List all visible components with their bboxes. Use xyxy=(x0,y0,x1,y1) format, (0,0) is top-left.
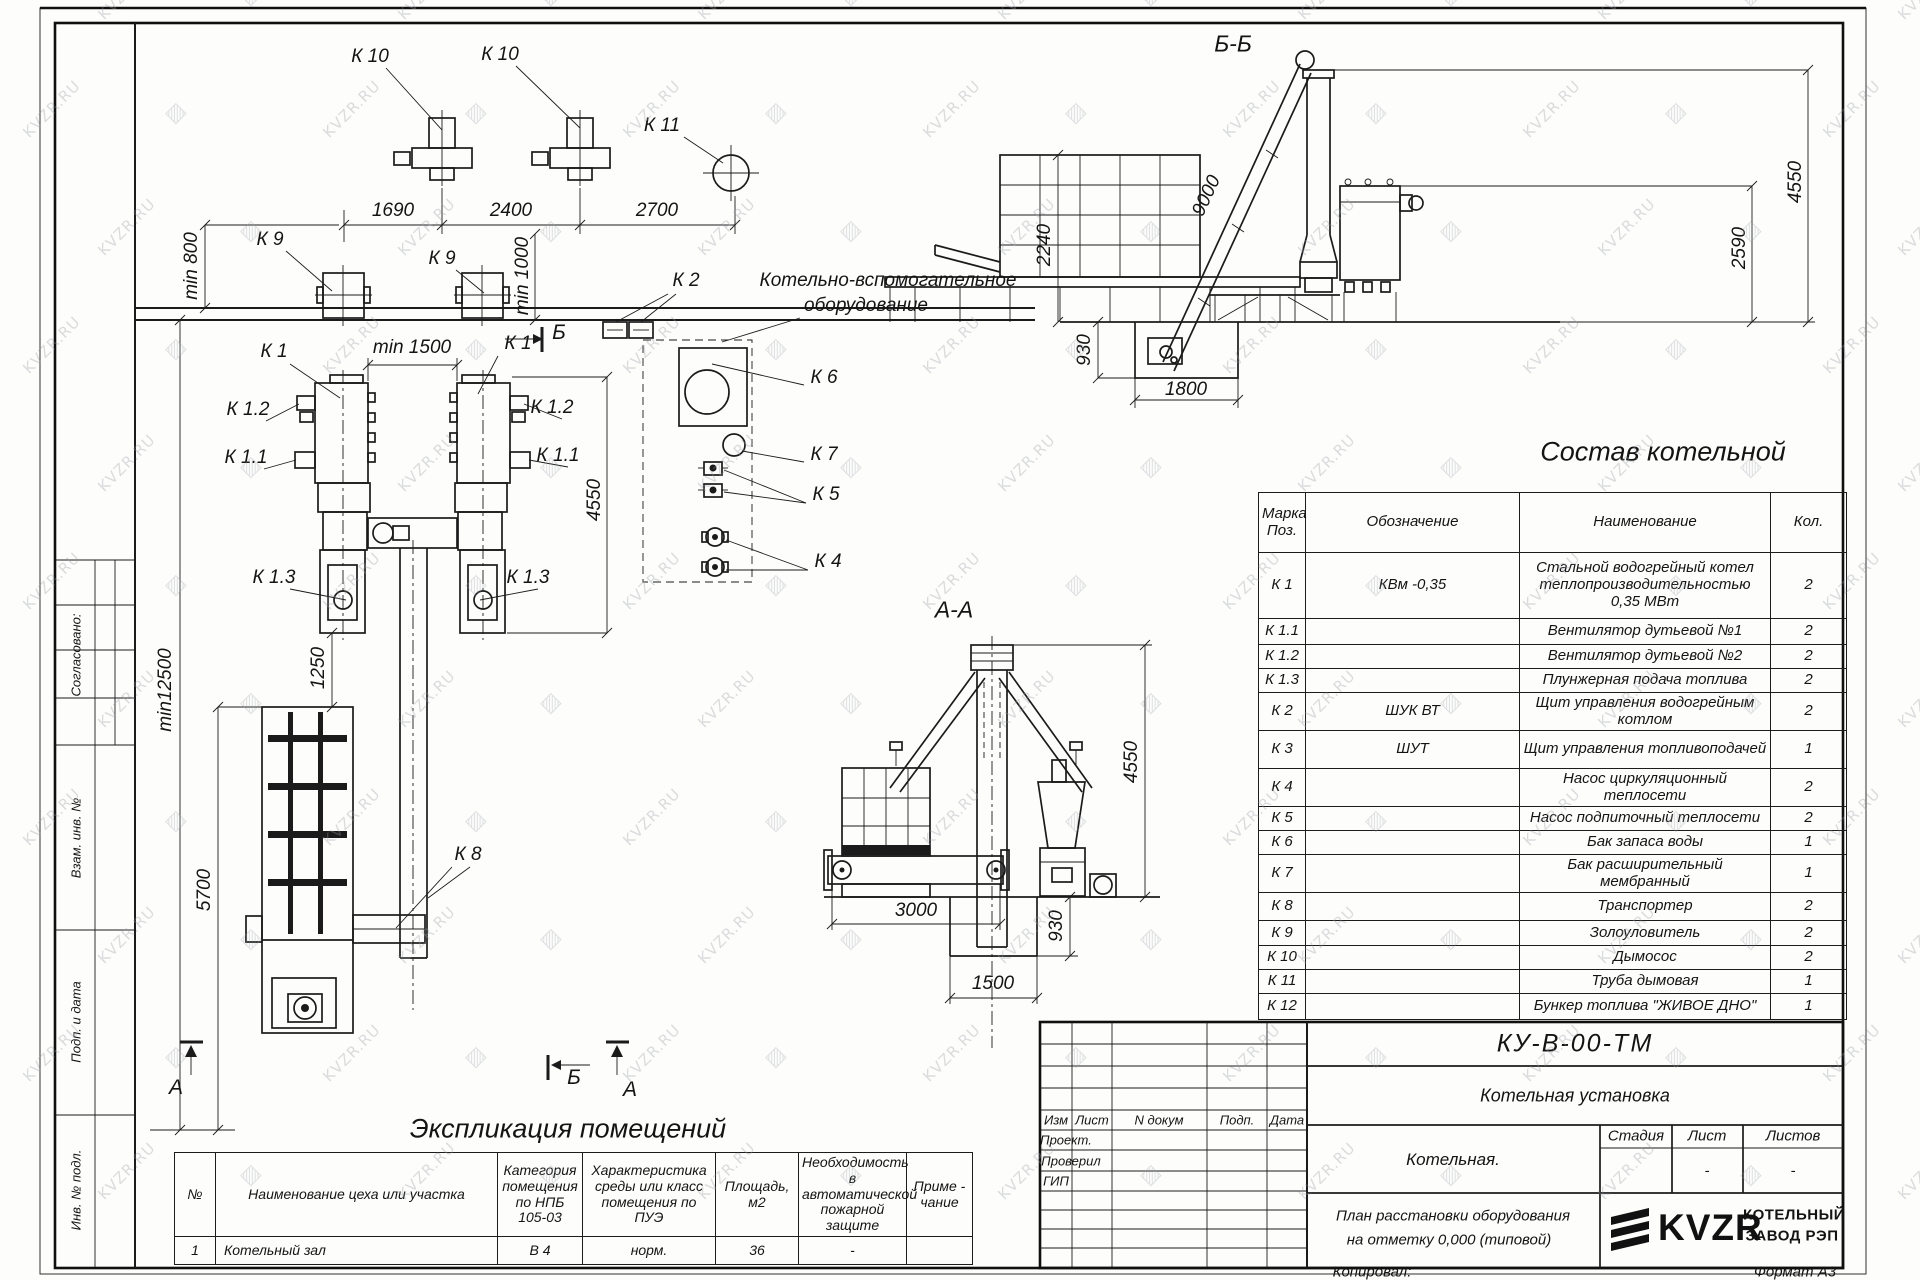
cell-num: 1 xyxy=(175,1237,216,1265)
label-k2: К 2 xyxy=(672,270,699,292)
dim-min1500: min 1500 xyxy=(373,337,451,359)
table-row: К 12Бункер топлива "ЖИВОЕ ДНО"1 xyxy=(1259,994,1847,1020)
format-label: Формат А3 xyxy=(1754,1264,1836,1280)
cell-qty: 1 xyxy=(1771,855,1847,893)
table-row: К 7Бак расширительный мембранный1 xyxy=(1259,855,1847,893)
label-k6: К 6 xyxy=(810,367,837,389)
dim-4550-aa: 4550 xyxy=(1121,741,1143,783)
cell-designation xyxy=(1306,994,1520,1020)
margin-approved: Согласовано: xyxy=(69,614,84,697)
cell-designation: ШУТ xyxy=(1306,731,1520,769)
sostav-title: Состав котельной xyxy=(1540,437,1786,468)
sheet-title-line1: План расстановки оборудования xyxy=(1336,1208,1570,1225)
role-proveril: Проверил xyxy=(1041,1154,1100,1169)
label-k1_3-right: К 1.3 xyxy=(507,567,550,589)
cell-qty: 2 xyxy=(1771,693,1847,731)
dim-2240: 2240 xyxy=(1034,224,1056,266)
cell-qty: 1 xyxy=(1771,731,1847,769)
company-logo: KVZR xyxy=(1608,1200,1840,1256)
table-row: К 8Транспортер2 xyxy=(1259,893,1847,921)
col-header-category: Категория помещения по НПБ 105-03 xyxy=(498,1153,583,1237)
aux-note-line1: Котельно-вспомогательное xyxy=(760,270,1017,292)
cell-qty: 2 xyxy=(1771,669,1847,693)
cell-name: Бак запаса воды xyxy=(1520,831,1771,855)
aux-equipment xyxy=(643,318,808,582)
aux-note-line2: оборудование xyxy=(804,295,928,317)
cell-name: Насос подпиточный теплосети xyxy=(1520,807,1771,831)
cell-qty: 1 xyxy=(1771,831,1847,855)
label-k10-2: К 10 xyxy=(481,44,519,66)
margin-inv: Инв. № подл. xyxy=(69,1150,84,1231)
sheets-header: Листов xyxy=(1766,1128,1821,1145)
col-header-name: Наименование xyxy=(1520,493,1771,553)
margin-vzam: Взам. инв. № xyxy=(69,798,84,878)
cell-designation xyxy=(1306,619,1520,645)
dim-1690: 1690 xyxy=(372,200,414,222)
label-k1_1-right: К 1.1 xyxy=(537,445,580,467)
kvzr-logo-text: KVZR xyxy=(1658,1207,1763,1249)
sostav-table: Марка Поз. Обозначение Наименование Кол.… xyxy=(1258,492,1847,1020)
dim-min12500: min12500 xyxy=(155,648,177,731)
margin-grid xyxy=(55,560,135,1268)
cell-qty: 2 xyxy=(1771,893,1847,921)
cell-mark: К 2 xyxy=(1259,693,1306,731)
cell-mark: К 5 xyxy=(1259,807,1306,831)
col-header-env: Характеристика среды или класс помещения… xyxy=(583,1153,716,1237)
col-header-designation: Обозначение xyxy=(1306,493,1520,553)
cell-mark: К 6 xyxy=(1259,831,1306,855)
table-row: К 1КВм -0,35Стальной водогрейный котел т… xyxy=(1259,553,1847,619)
explication-table: № Наименование цеха или участка Категори… xyxy=(174,1152,973,1265)
cell-name: Бункер топлива "ЖИВОЕ ДНО" xyxy=(1520,994,1771,1020)
dim-5700: 5700 xyxy=(194,869,216,911)
cell-mark: К 3 xyxy=(1259,731,1306,769)
dim-930-bb: 930 xyxy=(1074,334,1096,366)
cell-designation xyxy=(1306,921,1520,946)
cell-name: Щит управления водогрейным котлом xyxy=(1520,693,1771,731)
dim-min800: min 800 xyxy=(181,232,203,300)
cell-designation xyxy=(1306,855,1520,893)
section-marker-a-right: А xyxy=(623,1078,637,1102)
label-k1_2-left: К 1.2 xyxy=(227,399,270,421)
dim-2400: 2400 xyxy=(490,200,532,222)
table-header-row: Марка Поз. Обозначение Наименование Кол. xyxy=(1259,493,1847,553)
col-header-name: Наименование цеха или участка xyxy=(216,1153,498,1237)
col-header-num: № xyxy=(175,1153,216,1237)
table-row: К 2ШУК ВТЩит управления водогрейным котл… xyxy=(1259,693,1847,731)
kvzr-logo-icon xyxy=(1608,1204,1654,1252)
cell-area: 36 xyxy=(716,1237,799,1265)
col-header-fire: Необходимость в автоматической пожарной … xyxy=(799,1153,907,1237)
cell-category: В 4 xyxy=(498,1237,583,1265)
cell-qty: 2 xyxy=(1771,769,1847,807)
cell-qty: 1 xyxy=(1771,970,1847,994)
explication-title: Экспликация помещений xyxy=(410,1114,726,1145)
table-header-row: № Наименование цеха или участка Категори… xyxy=(175,1153,973,1237)
label-k5: К 5 xyxy=(812,484,839,506)
dim-3000: 3000 xyxy=(895,900,937,922)
table-row: К 11Труба дымовая1 xyxy=(1259,970,1847,994)
col-header-qty: Кол. xyxy=(1771,493,1847,553)
doc-number: КУ-В-00-ТМ xyxy=(1497,1030,1654,1059)
cell-name: Труба дымовая xyxy=(1520,970,1771,994)
cell-qty: 2 xyxy=(1771,553,1847,619)
sheets-value: - xyxy=(1791,1163,1796,1180)
drawing-sheet: .s0{stroke:#1b1b1b;stroke-width:0.9;fill… xyxy=(0,0,1920,1280)
dim-1500: 1500 xyxy=(972,973,1014,995)
cell-mark: К 1.3 xyxy=(1259,669,1306,693)
col-list: Лист xyxy=(1075,1113,1108,1128)
cell-name: Транспортер xyxy=(1520,893,1771,921)
cell-designation xyxy=(1306,645,1520,669)
dim-2590: 2590 xyxy=(1729,227,1751,269)
cell-name: Насос циркуляционный теплосети xyxy=(1520,769,1771,807)
section-bb xyxy=(885,51,1815,408)
cell-fire: - xyxy=(799,1237,907,1265)
sheet-header: Лист xyxy=(1688,1128,1727,1145)
label-k11: К 11 xyxy=(644,115,680,137)
section-aa-title: А-А xyxy=(935,597,973,624)
cell-env: норм. xyxy=(583,1237,716,1265)
role-proekt: Проект. xyxy=(1040,1133,1092,1148)
cell-designation: ШУК ВТ xyxy=(1306,693,1520,731)
col-header-mark: Марка Поз. xyxy=(1259,493,1306,553)
cell-name: Котельный зал xyxy=(216,1237,498,1265)
cell-designation xyxy=(1306,769,1520,807)
label-k4: К 4 xyxy=(814,551,841,573)
cell-note xyxy=(907,1237,973,1265)
cell-qty: 2 xyxy=(1771,807,1847,831)
label-k9-2: К 9 xyxy=(428,248,455,270)
cell-designation xyxy=(1306,893,1520,921)
cell-mark: К 8 xyxy=(1259,893,1306,921)
col-header-area: Площадь, м2 xyxy=(716,1153,799,1237)
label-k1_1-left: К 1.1 xyxy=(225,447,268,469)
cell-designation xyxy=(1306,669,1520,693)
label-k1-2: К 1 xyxy=(504,333,531,355)
table-row: К 1.3Плунжерная подача топлива2 xyxy=(1259,669,1847,693)
cell-designation: КВм -0,35 xyxy=(1306,553,1520,619)
col-podp: Подп. xyxy=(1220,1113,1255,1128)
cell-name: Вентилятор дутьевой №2 xyxy=(1520,645,1771,669)
cell-mark: К 9 xyxy=(1259,921,1306,946)
col-izm: Изм xyxy=(1044,1113,1068,1128)
object-name: Котельная. xyxy=(1406,1150,1500,1170)
cell-name: Дымосос xyxy=(1520,946,1771,970)
label-k1_3-left: К 1.3 xyxy=(253,567,296,589)
label-k1-1: К 1 xyxy=(260,341,287,363)
table-row: К 4Насос циркуляционный теплосети2 xyxy=(1259,769,1847,807)
cell-mark: К 11 xyxy=(1259,970,1306,994)
col-data: Дата xyxy=(1270,1113,1304,1128)
cell-name: Щит управления топливоподачей xyxy=(1520,731,1771,769)
cell-designation xyxy=(1306,807,1520,831)
label-k9-1: К 9 xyxy=(256,229,283,251)
cell-mark: К 12 xyxy=(1259,994,1306,1020)
section-bb-title: Б-Б xyxy=(1214,31,1252,58)
cell-name: Вентилятор дутьевой №1 xyxy=(1520,619,1771,645)
dim-1250: 1250 xyxy=(308,647,330,689)
label-k7: К 7 xyxy=(810,444,837,466)
dim-930-aa: 930 xyxy=(1046,910,1068,942)
label-k10-1: К 10 xyxy=(351,46,389,68)
table-row: К 3ШУТЩит управления топливоподачей1 xyxy=(1259,731,1847,769)
margin-podp-data: Подп. и дата xyxy=(69,981,84,1062)
cell-qty: 2 xyxy=(1771,645,1847,669)
project-title: Котельная установка xyxy=(1480,1086,1670,1107)
role-gip: ГИП xyxy=(1043,1174,1069,1189)
table-row: К 6Бак запаса воды1 xyxy=(1259,831,1847,855)
cell-name: Плунжерная подача топлива xyxy=(1520,669,1771,693)
dim-1800: 1800 xyxy=(1165,379,1207,401)
cell-mark: К 10 xyxy=(1259,946,1306,970)
cell-mark: К 4 xyxy=(1259,769,1306,807)
dim-2700: 2700 xyxy=(636,200,678,222)
cell-designation xyxy=(1306,831,1520,855)
cell-qty: 2 xyxy=(1771,921,1847,946)
cell-name: Стальной водогрейный котел теплопроизвод… xyxy=(1520,553,1771,619)
section-marker-b-bottom: Б xyxy=(567,1066,581,1090)
stage-header: Стадия xyxy=(1608,1128,1664,1145)
table-row: К 10Дымосос2 xyxy=(1259,946,1847,970)
dim-min1000: min 1000 xyxy=(512,237,534,315)
copied-label: Копировал: xyxy=(1333,1264,1412,1280)
sheet-value: - xyxy=(1705,1163,1710,1180)
dim-4550-plan: 4550 xyxy=(584,479,606,521)
sheet-title-line2: на отметку 0,000 (типовой) xyxy=(1347,1232,1551,1249)
cell-name: Бак расширительный мембранный xyxy=(1520,855,1771,893)
section-marker-b-top: Б xyxy=(552,321,566,345)
table-row: К 1.2Вентилятор дутьевой №22 xyxy=(1259,645,1847,669)
table-row: К 9Золоуловитель2 xyxy=(1259,921,1847,946)
section-marker-a-left: А xyxy=(169,1076,183,1100)
table-row: К 5Насос подпиточный теплосети2 xyxy=(1259,807,1847,831)
cell-mark: К 1.2 xyxy=(1259,645,1306,669)
label-k1_2-right: К 1.2 xyxy=(531,397,574,419)
cell-mark: К 7 xyxy=(1259,855,1306,893)
cell-qty: 2 xyxy=(1771,619,1847,645)
table-row: К 1.1Вентилятор дутьевой №12 xyxy=(1259,619,1847,645)
cell-designation xyxy=(1306,946,1520,970)
cell-designation xyxy=(1306,970,1520,994)
cell-name: Золоуловитель xyxy=(1520,921,1771,946)
col-ndoc: N докум xyxy=(1135,1113,1184,1128)
table-row: 1 Котельный зал В 4 норм. 36 - xyxy=(175,1237,973,1265)
cell-mark: К 1.1 xyxy=(1259,619,1306,645)
boiler-plan xyxy=(150,315,629,1135)
dim-4550-bb: 4550 xyxy=(1785,161,1807,203)
cell-mark: К 1 xyxy=(1259,553,1306,619)
cell-qty: 1 xyxy=(1771,994,1847,1020)
label-k8: К 8 xyxy=(454,844,481,866)
cell-qty: 2 xyxy=(1771,946,1847,970)
